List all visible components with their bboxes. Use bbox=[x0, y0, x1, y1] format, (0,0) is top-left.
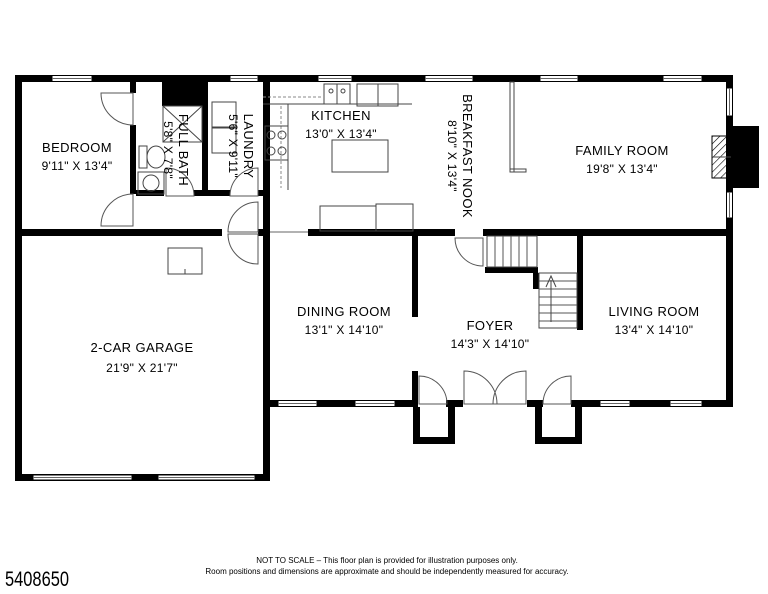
window bbox=[278, 401, 317, 407]
room-label-breakfast-nook: BREAKFAST NOOK bbox=[460, 94, 475, 218]
garage-door bbox=[158, 475, 255, 480]
window bbox=[600, 401, 630, 407]
window bbox=[52, 76, 92, 82]
room-label-living-room: LIVING ROOM bbox=[608, 304, 699, 319]
disclaimer-line1: NOT TO SCALE – This floor plan is provid… bbox=[256, 556, 518, 565]
room-dims-breakfast-nook: 8'10" X 13'4" bbox=[445, 120, 459, 192]
floor-plan-drawing: BEDROOM 9'11" X 13'4" KITCHEN 13'0" X 13… bbox=[0, 0, 768, 594]
room-dims-laundry: 5'6" X 9'11" bbox=[226, 114, 240, 178]
room-dims-living-room: 13'4" X 14'10" bbox=[615, 323, 694, 337]
room-dims-full-bath: 5'8" X 7'8" bbox=[161, 121, 175, 179]
window bbox=[425, 76, 473, 82]
disclaimer-line2: Room positions and dimensions are approx… bbox=[205, 567, 568, 576]
room-label-garage: 2-CAR GARAGE bbox=[90, 340, 193, 355]
window bbox=[670, 401, 702, 407]
room-dims-family-room: 19'8" X 13'4" bbox=[586, 162, 658, 176]
window bbox=[355, 401, 395, 407]
room-label-bedroom: BEDROOM bbox=[42, 140, 112, 155]
canvas-background bbox=[0, 0, 768, 594]
floor-plan-page: BEDROOM 9'11" X 13'4" KITCHEN 13'0" X 13… bbox=[0, 0, 768, 594]
garage-door bbox=[33, 475, 132, 480]
room-label-dining-room: DINING ROOM bbox=[297, 304, 391, 319]
room-dims-kitchen: 13'0" X 13'4" bbox=[305, 127, 377, 141]
room-label-family-room: FAMILY ROOM bbox=[575, 143, 669, 158]
room-label-full-bath: FULL BATH bbox=[176, 114, 191, 186]
room-dims-foyer: 14'3" X 14'10" bbox=[451, 337, 530, 351]
window bbox=[318, 76, 352, 82]
room-dims-garage: 21'9" X 21'7" bbox=[106, 361, 178, 375]
window bbox=[727, 192, 733, 218]
window bbox=[727, 88, 733, 116]
window bbox=[540, 76, 578, 82]
room-label-foyer: FOYER bbox=[467, 318, 514, 333]
room-dims-dining-room: 13'1" X 14'10" bbox=[305, 323, 384, 337]
plan-id: 5408650 bbox=[5, 568, 69, 591]
room-dims-bedroom: 9'11" X 13'4" bbox=[42, 159, 113, 173]
window bbox=[663, 76, 702, 82]
room-label-laundry: LAUNDRY bbox=[241, 114, 256, 179]
room-label-kitchen: KITCHEN bbox=[311, 108, 371, 123]
window bbox=[230, 76, 258, 82]
